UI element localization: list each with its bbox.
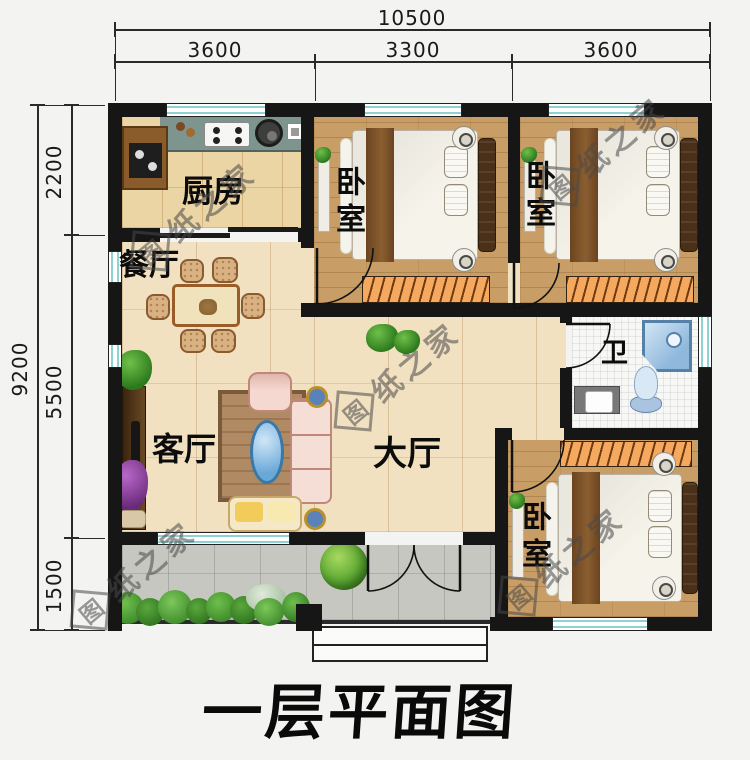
label-kitchen: 厨房 bbox=[182, 177, 244, 208]
label-bedroom2: 卧室 bbox=[522, 160, 552, 234]
door-arc-entry-left bbox=[368, 545, 414, 591]
door-arc-entry-right bbox=[414, 545, 460, 591]
label-bedroom3: 卧室 bbox=[518, 501, 548, 575]
label-bath: 卫 bbox=[601, 340, 628, 367]
label-living: 客厅 bbox=[152, 433, 216, 465]
label-dining: 餐厅 bbox=[119, 251, 179, 281]
floorplan-page: { "title": "一层平面图", "watermark": { "logo… bbox=[0, 0, 750, 760]
door-arc-bedroom2 bbox=[514, 263, 559, 308]
door-arc-bedroom1 bbox=[317, 248, 373, 304]
label-bedroom1: 卧室 bbox=[332, 166, 362, 240]
door-swings bbox=[0, 0, 750, 760]
plan-title: 一层平面图 bbox=[57, 664, 663, 751]
door-arc-bedroom3 bbox=[512, 440, 564, 492]
label-hall: 大厅 bbox=[373, 437, 441, 471]
